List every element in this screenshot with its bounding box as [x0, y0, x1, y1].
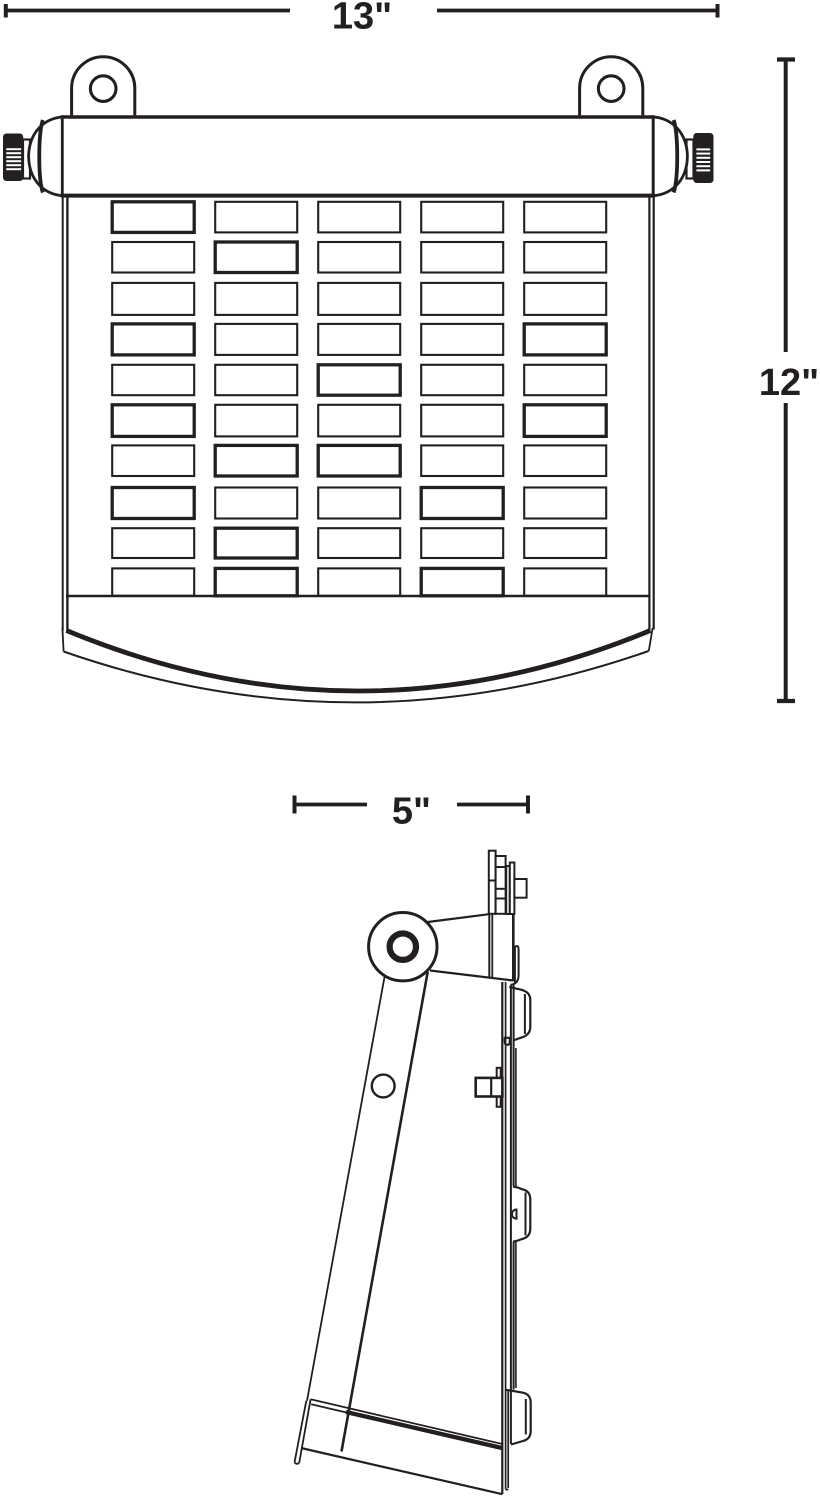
- svg-text:13": 13": [332, 0, 392, 38]
- svg-text:5": 5": [392, 791, 431, 833]
- svg-text:12": 12": [759, 362, 819, 404]
